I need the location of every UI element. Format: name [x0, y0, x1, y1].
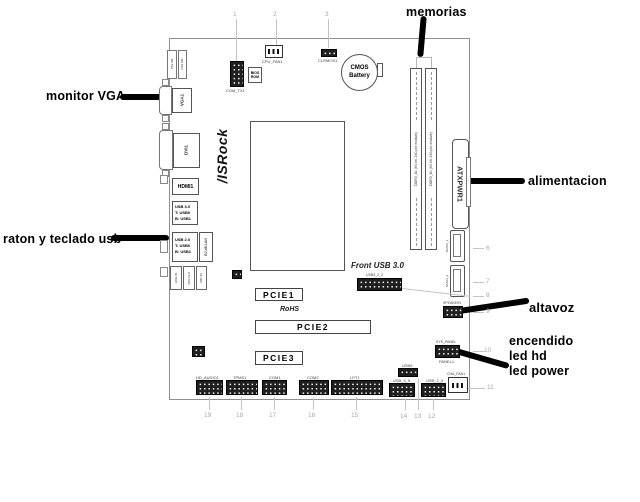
usb-port-bump: [160, 240, 168, 253]
vga-port-shell: [159, 86, 172, 115]
callout-19: 19: [204, 412, 211, 419]
audio-jack-1-label: LINE IN: [174, 273, 178, 284]
jumper-b: [192, 346, 205, 357]
atx-power-label: ATXPWR1: [456, 166, 465, 202]
dimm-bracket-left: [416, 57, 417, 68]
pcie1-slot: PCIE1: [255, 288, 303, 301]
leader-line-1: [236, 19, 237, 61]
ps2-port-a-label: PS2 KB: [170, 59, 174, 70]
sata-port-2-inner: [453, 269, 461, 292]
callout-9: 9: [486, 308, 490, 315]
asrock-logo: /ISRock: [214, 129, 230, 184]
vga-port-tab-top: [162, 79, 169, 86]
bios-rom-line2: ROM: [251, 75, 259, 79]
callout-18: 18: [236, 412, 243, 419]
hdmi-port-bump: [160, 175, 168, 184]
rohs-label: RoHS: [280, 306, 299, 313]
callout-3: 3: [325, 11, 329, 18]
jumper-a: [232, 270, 242, 279]
chassis-fan-label: CHA_FAN1: [447, 372, 465, 376]
cpu-fan-label: CPU_FAN1: [262, 59, 283, 64]
speaker-header-label: SPEAKER1: [443, 301, 461, 305]
ps2-port-b-label: PS2 MS: [180, 58, 184, 69]
usb-header-13: [398, 368, 418, 377]
pcie2-slot: PCIE2: [255, 320, 371, 334]
leader-line-7: [473, 282, 484, 283]
leader-line-14: [405, 399, 406, 410]
cmos-battery-line1: CMOS: [351, 65, 369, 73]
usb2-ports-line3: B: USB1: [175, 249, 197, 255]
callout-15: 15: [351, 412, 358, 419]
speaker-header: [443, 306, 463, 318]
cmos-battery: CMOS Battery: [341, 54, 378, 91]
vga-port-label: VGA1: [180, 94, 185, 106]
front-usb3-header: [357, 278, 402, 291]
led-hd-label: led hd: [509, 349, 547, 363]
callout-6: 6: [486, 245, 490, 252]
dimm-a-keyline-top: [416, 72, 417, 120]
raton-teclado-label: raton y teclado usb: [3, 232, 121, 246]
leader-line-15: [356, 397, 357, 410]
atx-power-clip: [466, 157, 471, 207]
com2-header: [299, 380, 329, 395]
leader-line-13: [418, 379, 419, 410]
dvi-port-label: DVI1: [184, 145, 189, 155]
lpt-header: [331, 380, 383, 395]
callout-11: 11: [487, 384, 494, 391]
panel-header: [435, 345, 460, 358]
leader-line-3: [328, 19, 329, 48]
dvi-port-tab-top: [162, 123, 169, 130]
sata-port-1-inner: [453, 234, 461, 257]
hdmi-port: HDMI1: [172, 178, 199, 195]
callout-2: 2: [273, 11, 277, 18]
callout-1: 1: [233, 11, 237, 18]
cpu-fan-pins: [268, 49, 280, 54]
cmos-battery-line2: Battery: [349, 73, 370, 81]
usb3-ports-line3: B: USB1: [175, 216, 197, 222]
sata-port-1-label: SATA3_1: [445, 240, 449, 252]
bios-rom: BIOS ROM: [248, 67, 262, 83]
callout-8: 8: [486, 292, 490, 299]
altavoz-label: altavoz: [529, 300, 574, 315]
leader-line-17: [274, 397, 275, 410]
front-usb3-label: USB3_2_3: [366, 273, 383, 277]
encendido-label: encendido: [509, 334, 573, 348]
leader-line-12: [433, 399, 434, 410]
usb3-ports: USB 3.0 T: USB0 B: USB1: [172, 201, 198, 225]
pcie2-label: PCIE2: [297, 322, 329, 332]
lan-port-label: RJ-45 LAN: [204, 238, 208, 256]
audio-port-bump: [160, 267, 168, 277]
audio-jack-3-label: MIC IN: [199, 273, 203, 282]
pcie1-label: PCIE1: [263, 290, 295, 300]
callout-16: 16: [308, 412, 315, 419]
vga-port-tab-bottom: [162, 115, 169, 122]
callout-13: 13: [414, 413, 421, 420]
pcie3-label: PCIE3: [263, 353, 295, 363]
usb2-ports: USB 2.0 T: USB0 B: USB1: [172, 232, 198, 262]
leader-line-10: [473, 351, 484, 352]
usb-header-14: [389, 383, 415, 397]
leader-line-18: [241, 397, 242, 410]
cmos-battery-clip: [377, 63, 383, 77]
usb-header-12: [421, 383, 446, 397]
pcie3-slot: PCIE3: [255, 351, 303, 365]
dimm-slot-b-label: DDR3_B1 (64 bit, 240-pin module): [429, 132, 433, 186]
front-usb3-title: Front USB 3.0: [351, 261, 404, 270]
led-power-label: led power: [509, 364, 569, 378]
leader-line-11: [468, 388, 485, 389]
clrmos-jumper: [321, 49, 337, 57]
panel-header-top-label: SYS_PANEL: [436, 340, 456, 344]
leader-line-16: [313, 397, 314, 410]
hd-audio-header: [196, 380, 223, 395]
alimentacion-label: alimentacion: [528, 174, 607, 188]
callout-10: 10: [484, 347, 491, 354]
dimm-a-keyline-bottom: [416, 198, 417, 246]
callout-17: 17: [269, 412, 276, 419]
leader-line-9: [473, 312, 484, 313]
leader-line-19: [209, 397, 210, 410]
panel-header-label: PANEL1: [439, 359, 454, 364]
tpm-header: [226, 380, 258, 395]
sata-port-2-label: SATA3_2: [445, 275, 449, 287]
com1-header: [262, 380, 287, 395]
leader-line-8: [473, 296, 484, 297]
dimm-bracket-right: [431, 57, 432, 68]
header-1: [230, 61, 244, 87]
leader-line-6: [473, 248, 484, 249]
memorias-label: memorias: [406, 5, 467, 19]
dimm-slot-a-label: DDR3_A1 (64 bit, 240-pin module): [414, 132, 418, 186]
callout-7: 7: [486, 278, 490, 285]
clrmos-label: CLRMOS1: [318, 58, 337, 63]
dimm-b-keyline-top: [431, 72, 432, 120]
hdmi-port-label: HDMI1: [178, 184, 194, 190]
cpu-socket: [250, 121, 345, 271]
leader-line-2: [276, 19, 277, 45]
callout-14: 14: [400, 413, 407, 420]
header-1-label: COM_TX1: [226, 88, 245, 93]
dimm-bracket-top: [416, 57, 432, 58]
dvi-port-shell: [159, 130, 173, 170]
motherboard-diagram: memorias monitor VGA raton y teclado usb…: [0, 0, 640, 502]
monitor-vga-label: monitor VGA: [46, 89, 125, 103]
audio-jack-2-label: SPK OUT: [187, 271, 191, 284]
callout-12: 12: [428, 413, 435, 420]
chassis-fan-pins: [452, 383, 464, 388]
dimm-b-keyline-bottom: [431, 198, 432, 246]
